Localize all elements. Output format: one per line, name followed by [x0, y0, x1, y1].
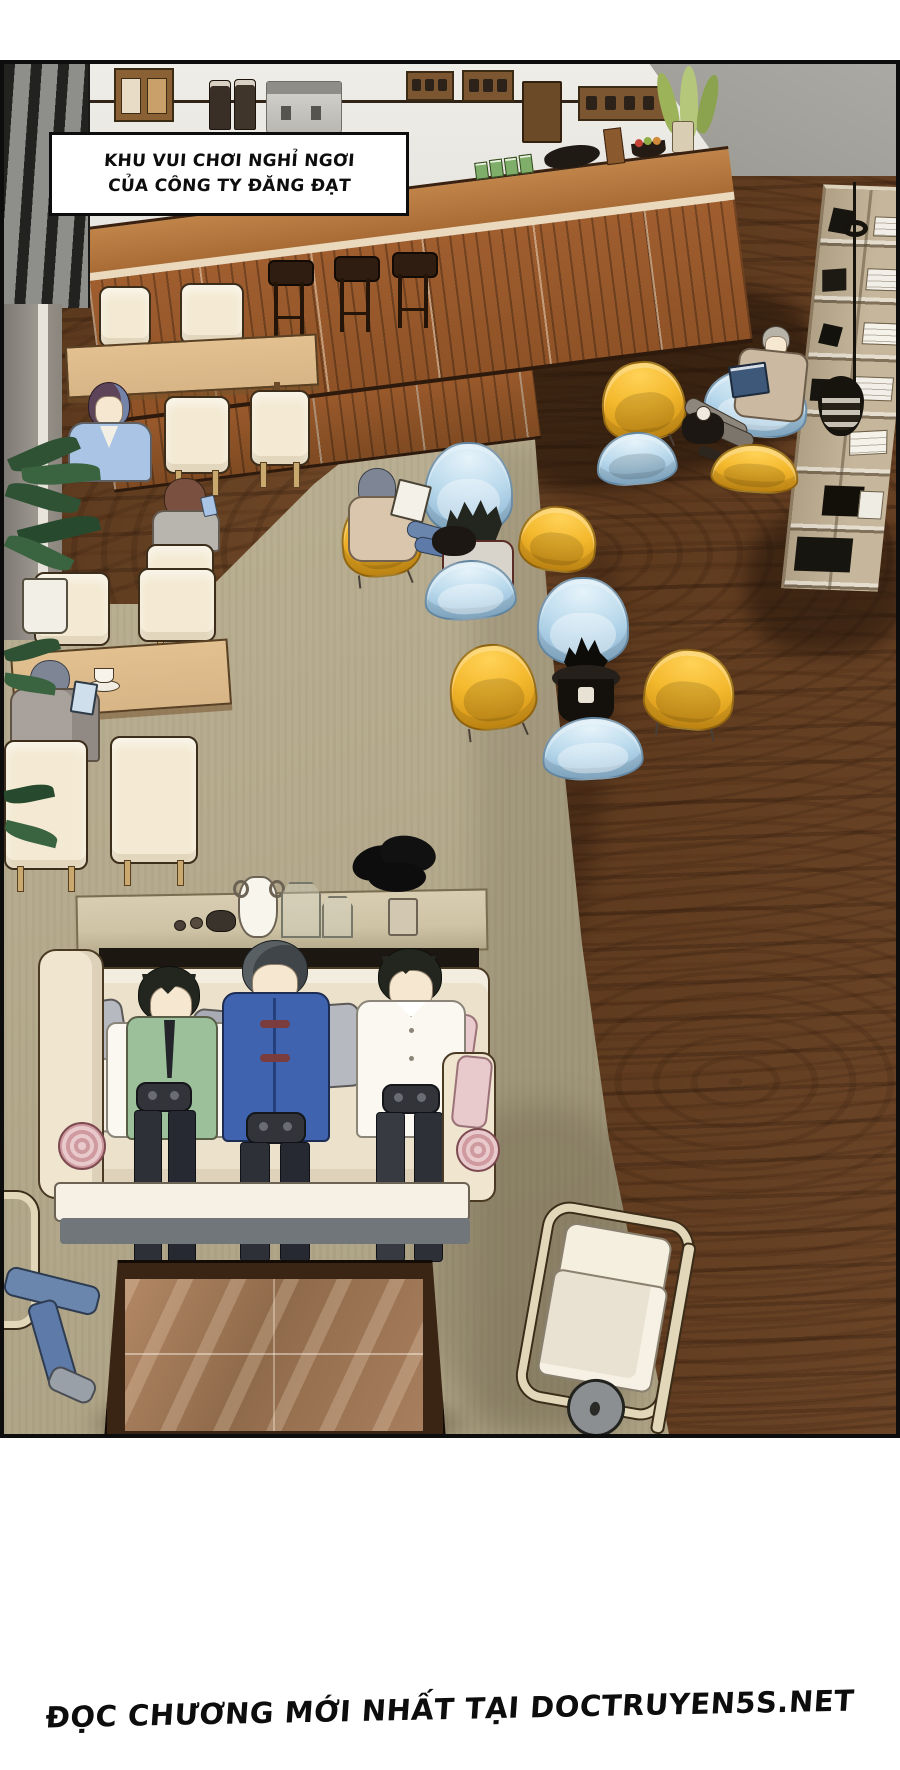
bar-stool-2 [334, 256, 376, 336]
controller-stick [394, 1093, 403, 1102]
controller-stick [259, 1122, 268, 1131]
dining-chair [250, 390, 310, 466]
open-book-icon [390, 478, 432, 523]
bar-stool-1 [268, 260, 310, 340]
book-stack-white-2 [865, 268, 900, 291]
mug-7 [586, 96, 597, 110]
menu-board [522, 81, 562, 143]
man1-controller-icon [136, 1082, 192, 1112]
lounge-cart-chair [510, 1200, 731, 1438]
frog-button [260, 1020, 290, 1028]
plant-leaf [3, 820, 59, 849]
plant-leaf [3, 672, 57, 695]
controller-stick [417, 1093, 426, 1102]
mug-rack-2 [462, 70, 514, 102]
teapot-icon [206, 910, 236, 932]
espresso-spout-2 [311, 106, 321, 120]
green-cup-1 [474, 161, 489, 179]
espresso-machine-top [267, 82, 341, 94]
visitor-legs [4, 1264, 114, 1414]
coffee-tumbler-2 [234, 79, 256, 130]
book-stack-white-3 [862, 322, 900, 345]
fruit-orange [652, 136, 661, 145]
green-cup-3 [504, 157, 519, 176]
caption-box: KHU VUI CHƠI NGHỈ NGƠI CỦA CÔNG TY ĐĂNG … [49, 132, 409, 216]
reading-man [664, 326, 809, 466]
glass-vase-large [281, 882, 321, 938]
visitor-sock [45, 1363, 99, 1406]
comic-panel: KHU VUI CHƠI NGHỈ NGƠI CỦA CÔNG TY ĐĂNG … [0, 60, 900, 1438]
caption-line-2: CỦA CÔNG TY ĐĂNG ĐẠT [107, 174, 352, 200]
dining-chair-back [138, 568, 216, 642]
man3-collar [396, 1002, 426, 1017]
mug-5 [483, 79, 493, 92]
frog-button [260, 1054, 290, 1062]
binder-black-3 [818, 323, 843, 347]
bar-stool-3 [392, 252, 434, 332]
coffee-table [104, 1260, 446, 1438]
man2-controller-icon [246, 1112, 306, 1144]
book-icon [728, 362, 770, 399]
man3-controller-icon [382, 1084, 440, 1114]
mug-3 [438, 79, 447, 91]
shirt-button [409, 1056, 414, 1061]
console-plant-vase [388, 898, 418, 936]
counter-plant-vase [672, 121, 694, 153]
caption-line-1: KHU VUI CHƠI NGHỈ NGƠI [103, 149, 356, 175]
tea-cup-2 [190, 917, 203, 929]
bolster-pillow-left [58, 1122, 106, 1170]
espresso-machine [266, 81, 342, 133]
fruit-green [643, 137, 652, 146]
table-label [578, 687, 594, 703]
book-tablet-icon [70, 680, 99, 715]
jug-handle [233, 880, 249, 898]
shirt-button [409, 1028, 414, 1033]
lamp-chain [853, 182, 856, 382]
lamp-chain-ring [842, 220, 868, 237]
sofa-base-shadow [60, 1218, 470, 1244]
stool-leg [300, 282, 304, 336]
book-stack-white-5 [849, 430, 888, 456]
side-table-black [432, 526, 476, 556]
controller-stick [170, 1091, 179, 1100]
mug-6 [497, 79, 507, 92]
wheel-hub [589, 1401, 601, 1417]
stool-leg [340, 278, 344, 332]
bolster-pillow-right [456, 1128, 500, 1172]
side-table-black [682, 412, 724, 444]
stool-crossbar [398, 308, 428, 311]
controller-stick [148, 1091, 157, 1100]
cart-seat-cushion [536, 1268, 669, 1395]
comic-page: KHU VUI CHƠI NGHỈ NGƠI CỦA CÔNG TY ĐĂNG … [0, 0, 900, 1770]
table-seam-v [273, 1279, 275, 1431]
book-white-6 [857, 491, 884, 520]
tea-cup-1 [174, 920, 186, 931]
espresso-spout-1 [281, 106, 291, 120]
controller-stick [283, 1122, 292, 1131]
mug-9 [624, 96, 635, 110]
sofa-base [54, 1182, 470, 1222]
white-jug [238, 876, 278, 938]
dining-chair-back [99, 286, 151, 348]
cabinet-cup-right [147, 78, 167, 114]
pillow-pink-right [450, 1054, 493, 1129]
dining-chair [110, 736, 198, 864]
table-cup [696, 406, 711, 421]
lamp-bands [822, 398, 860, 430]
potted-plant-1 [4, 436, 116, 636]
footer-site-text: ĐỌC CHƯƠNG MỚI NHẤT TẠI DOCTRUYEN5S.NET [0, 1683, 900, 1736]
plant-pot-white [22, 578, 68, 634]
woman-phone [150, 478, 220, 548]
mug-rack-1 [406, 71, 454, 101]
mug-8 [605, 96, 616, 110]
coffee-cabinet [114, 68, 174, 122]
fruit-red [634, 139, 643, 148]
stool-leg [366, 278, 370, 332]
plant-black-blob [368, 862, 426, 892]
binder-black-2 [822, 268, 846, 292]
glass-vase-small [322, 896, 353, 938]
plant-leaf [3, 634, 61, 667]
cabinet-cup-left [121, 78, 141, 114]
dining-chair-back [180, 283, 244, 345]
mug-1 [412, 79, 421, 91]
green-cup-2 [489, 158, 504, 177]
stool-leg [274, 282, 278, 336]
book-stack-white-1 [873, 216, 900, 237]
stool-leg [398, 274, 402, 328]
stool-leg [424, 274, 428, 328]
green-cup-4 [519, 154, 534, 174]
coffee-tumbler-1 [209, 80, 231, 130]
stool-crossbar [274, 316, 304, 319]
mug-4 [469, 79, 479, 92]
plant-leaf [3, 781, 55, 807]
console-plant-black [352, 836, 440, 902]
dining-chair [164, 396, 230, 474]
phone-icon [200, 495, 218, 517]
stool-crossbar [340, 312, 370, 315]
mug-2 [425, 79, 434, 91]
binder-black-6 [794, 537, 853, 573]
coffee-table-top [125, 1279, 423, 1431]
potted-plant-2 [4, 636, 66, 896]
